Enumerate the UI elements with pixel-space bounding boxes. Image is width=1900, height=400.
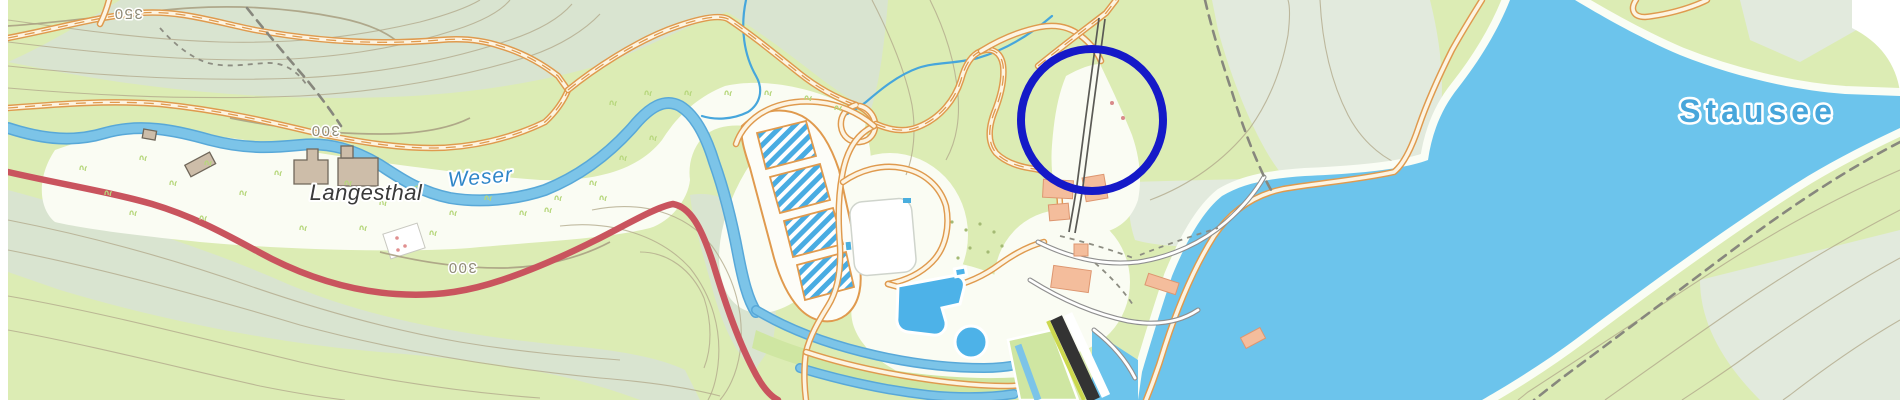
farm-dot xyxy=(403,244,407,248)
building-resort-hall xyxy=(849,197,917,276)
building-langesthal-3 xyxy=(341,146,353,158)
building-farm-small xyxy=(142,129,156,140)
building-entrance-mark xyxy=(846,242,852,250)
swimming-pool-round xyxy=(955,326,987,358)
penstock-marker xyxy=(1110,101,1114,105)
contour-label-350: 350 xyxy=(113,5,143,22)
left-margin xyxy=(0,0,8,400)
swimming-pool-small xyxy=(954,267,966,277)
farm-dot xyxy=(395,236,399,240)
penstock-marker xyxy=(1121,116,1125,120)
building-dam-2 xyxy=(1048,203,1069,221)
contour-label-300-a: 300 xyxy=(310,122,340,139)
contour-label-300-b: 300 xyxy=(447,259,477,276)
building-dam-3 xyxy=(1051,265,1092,292)
topo-map[interactable]: 350 300 300 Langesthal Weser Stausee xyxy=(0,0,1900,400)
building-entrance-mark xyxy=(903,198,911,203)
settlement-label: Langesthal xyxy=(310,180,423,205)
lake-label: Stausee xyxy=(1679,93,1837,129)
farm-dot xyxy=(396,248,400,252)
building-dam-4 xyxy=(1074,244,1088,256)
